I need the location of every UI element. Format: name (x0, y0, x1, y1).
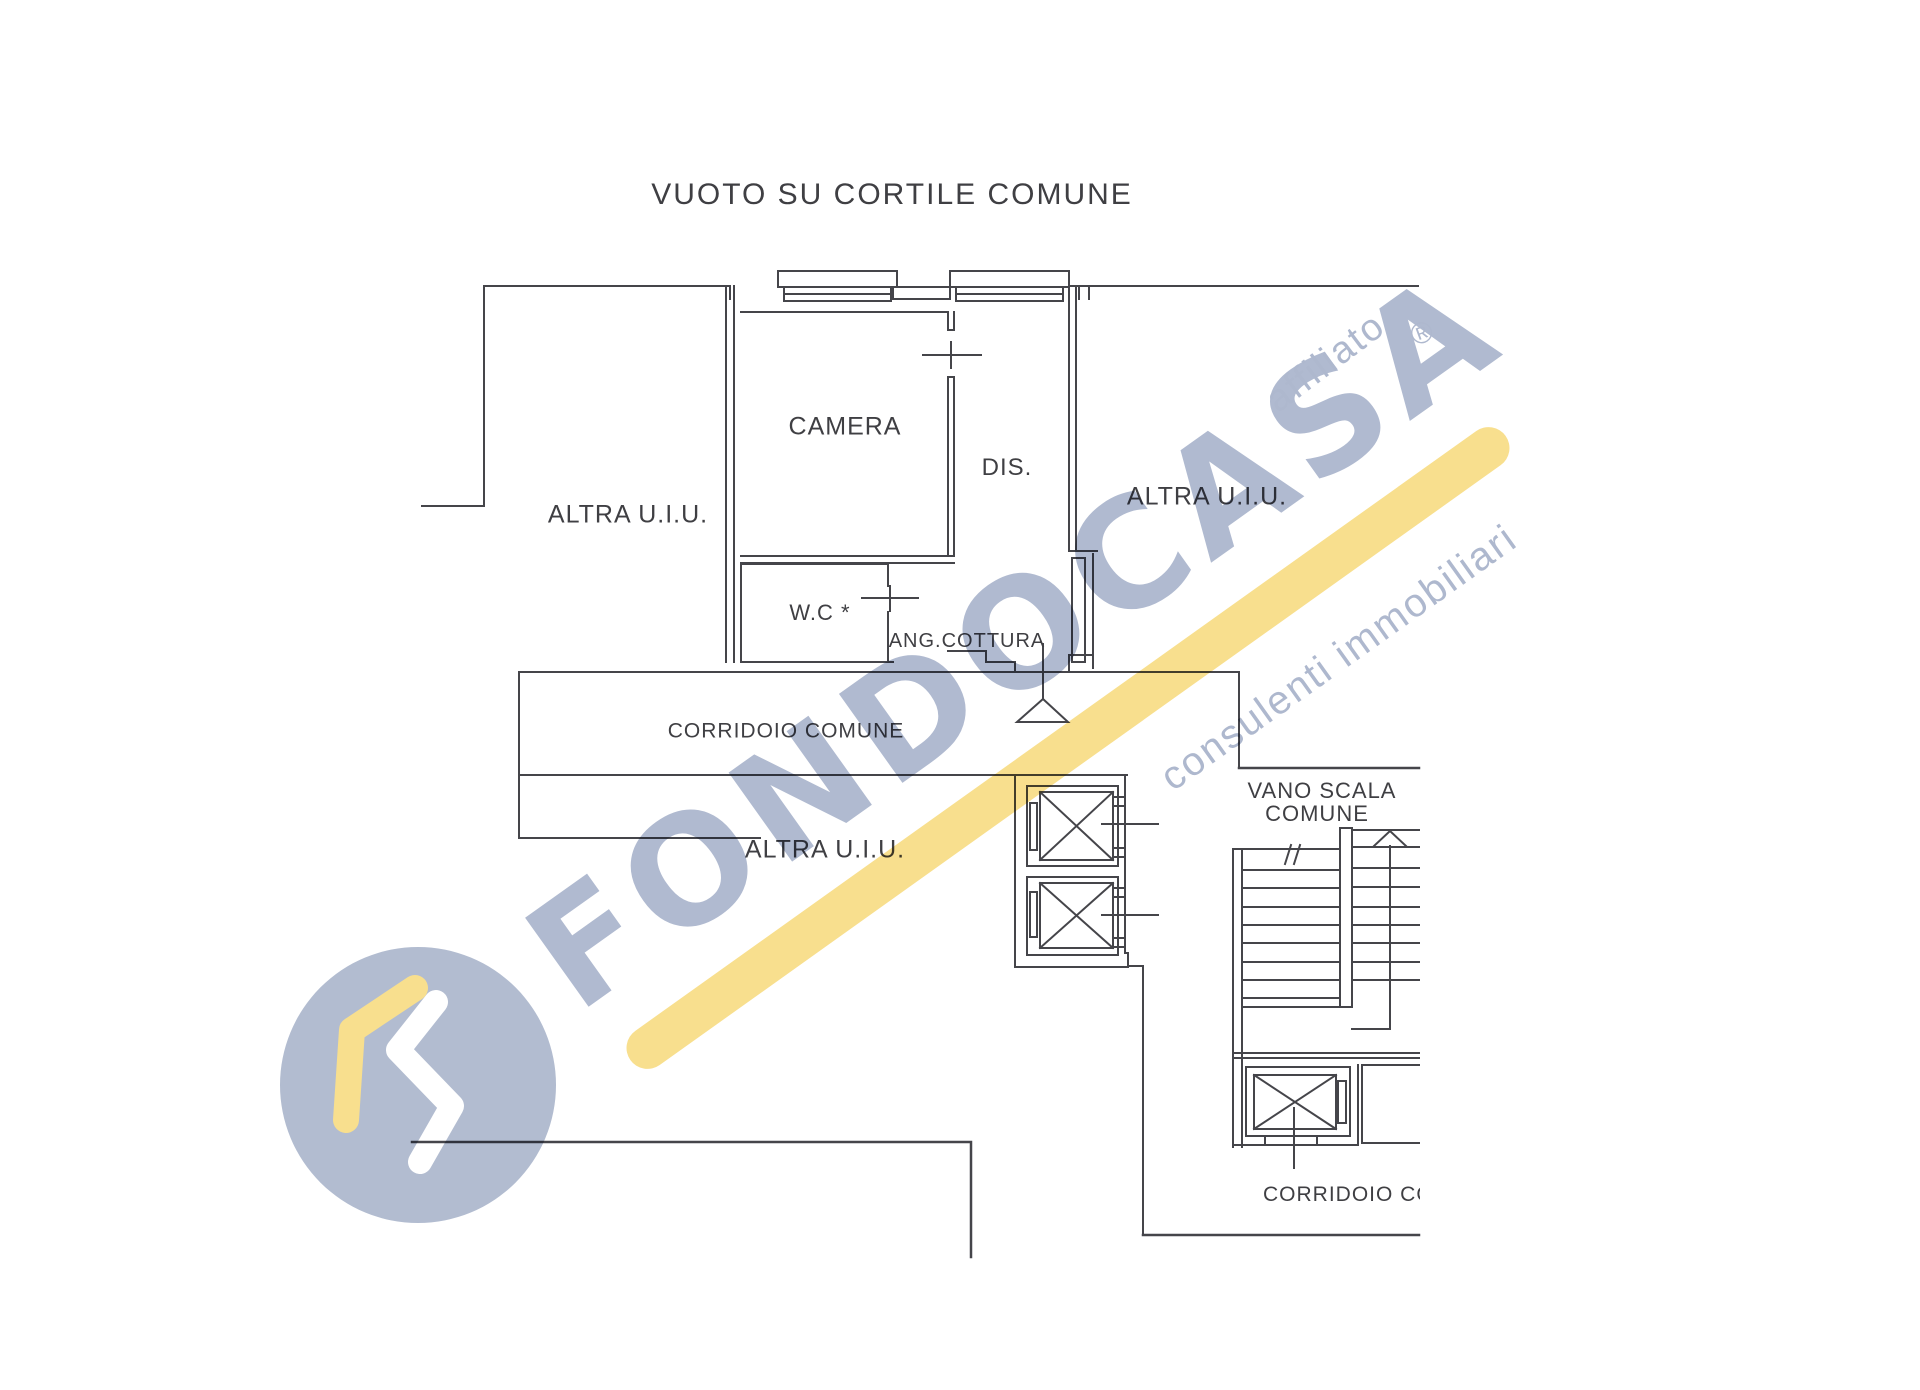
label-ang-cottura: ANG.COTTURA (889, 631, 1046, 651)
elevator-shaft-walls (1015, 775, 1143, 1235)
wall-between-windows (893, 287, 950, 299)
window-dis (950, 271, 1069, 301)
wall-lower-left (519, 775, 760, 838)
label-dis: DIS. (982, 456, 1033, 480)
stairwell (1233, 828, 1419, 1147)
label-altra-uiu-left: ALTRA U.I.U. (548, 503, 708, 528)
floor-plan-page: VUOTO SU CORTILE COMUNE ALTRA U.I.U. CAM… (0, 0, 1920, 1390)
stair-start-ticks (1285, 845, 1300, 864)
label-corridoio-comune: CORRIDOIO COMUNE (668, 721, 905, 742)
label-altra-uiu-right: ALTRA U.I.U. (1127, 485, 1287, 510)
wall-left-unit (422, 286, 730, 506)
label-corridoio-bottom: CORRIDOIO CO (1263, 1184, 1420, 1208)
entrance-door-swing (1017, 699, 1068, 722)
label-camera: CAMERA (789, 415, 902, 440)
label-wc: W.C * (789, 602, 850, 624)
title-vuoto-su-cortile: VUOTO SU CORTILE COMUNE (651, 180, 1133, 210)
stair-direction-arrow (1352, 831, 1406, 1029)
window-camera (778, 271, 897, 301)
door-wc (862, 586, 918, 611)
label-vano-scala: VANO SCALA (1248, 780, 1397, 802)
bottom-elevator-room (1233, 1065, 1419, 1168)
label-vano-scala-comune: COMUNE (1265, 803, 1369, 825)
elevator-2 (1027, 877, 1158, 955)
ang-cottura-steps (948, 651, 1015, 672)
label-altra-uiu-lower: ALTRA U.I.U. (745, 838, 905, 863)
corridor-walls (519, 672, 1419, 775)
room-dis-walls (1069, 288, 1097, 670)
wall-bottom-left-long (412, 1142, 971, 1257)
elevator-1 (1027, 786, 1158, 866)
wall-top-right (1069, 286, 1418, 299)
door-camera (923, 342, 981, 368)
